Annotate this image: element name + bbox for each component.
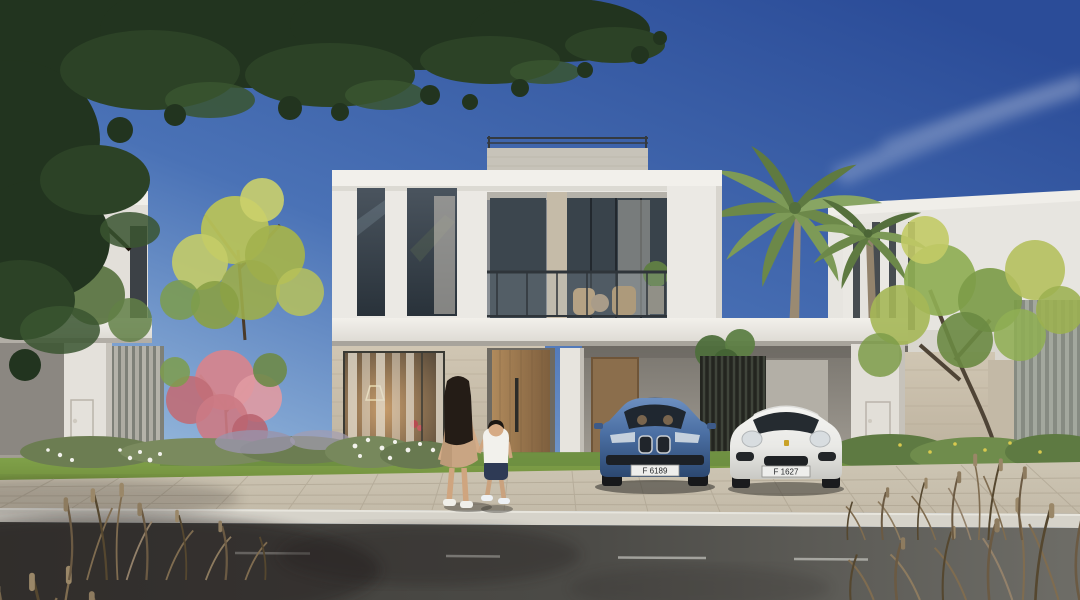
- upper-floor: [332, 186, 722, 318]
- headlight: [742, 431, 762, 447]
- headlight: [810, 431, 830, 447]
- roof-fascia: [332, 170, 722, 186]
- license-plate-text: F 6189: [643, 467, 668, 476]
- balcony-railing: [487, 272, 667, 316]
- windshield: [624, 405, 686, 430]
- license-plate-text: F 1627: [774, 468, 799, 477]
- villa-render: F 6189 F 1627: [0, 0, 1080, 600]
- balcony: [487, 192, 669, 318]
- hood-crest: [784, 440, 789, 446]
- door-handle: [515, 378, 519, 432]
- scene-canvas: F 6189 F 1627: [0, 0, 1080, 600]
- carport-beam: [332, 318, 908, 344]
- hair: [444, 376, 473, 445]
